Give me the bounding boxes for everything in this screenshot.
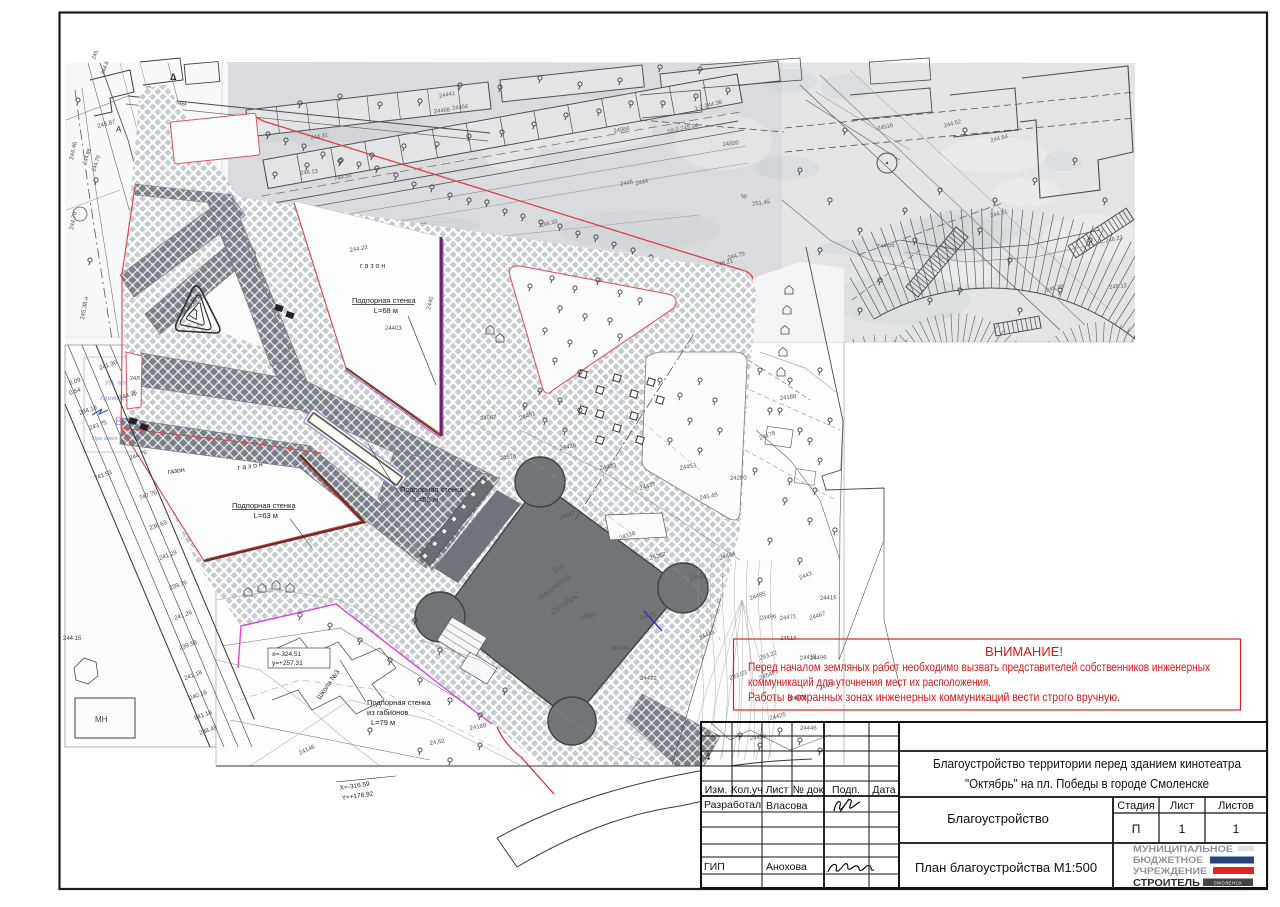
svg-text:Благоустройство: Благоустройство bbox=[947, 811, 1049, 826]
svg-text:L=63 м: L=63 м bbox=[254, 511, 278, 520]
svg-text:БЮДЖЕТНОЕ: БЮДЖЕТНОЕ bbox=[1133, 855, 1203, 865]
svg-text:24416: 24416 bbox=[820, 595, 838, 602]
svg-text:Лист: Лист bbox=[1170, 800, 1194, 812]
svg-text:А: А bbox=[116, 125, 122, 134]
svg-text:24403: 24403 bbox=[385, 326, 402, 332]
svg-text:коммуникаций для уточнения мес: коммуникаций для уточнения мест их распо… bbox=[748, 675, 991, 689]
svg-text:СТРОИТЕЛЬ: СТРОИТЕЛЬ bbox=[1133, 878, 1200, 889]
svg-text:1: 1 bbox=[1179, 822, 1186, 836]
svg-text:L=55 м: L=55 м bbox=[414, 495, 438, 504]
svg-text:244.15: 244.15 bbox=[63, 636, 82, 642]
svg-text:x=-324.51: x=-324.51 bbox=[272, 651, 301, 658]
svg-text:Перед началом земляных работ н: Перед началом земляных работ необходимо … bbox=[748, 660, 1210, 674]
svg-text:Подпорная стенка: Подпорная стенка bbox=[400, 485, 464, 494]
svg-text:244.04: 244.04 bbox=[610, 646, 629, 652]
svg-text:МУНИЦИПАЛЬНОЕ: МУНИЦИПАЛЬНОЕ bbox=[1133, 844, 1233, 854]
svg-text:Разработал: Разработал bbox=[704, 799, 761, 811]
svg-text:П: П bbox=[1132, 822, 1141, 836]
svg-text:L=79 м: L=79 м bbox=[371, 718, 395, 727]
svg-text:Кол.уч: Кол.уч bbox=[731, 784, 763, 796]
svg-text:Власова: Власова bbox=[766, 800, 808, 812]
svg-text:ГИП: ГИП bbox=[704, 861, 725, 873]
svg-text:Стадия: Стадия bbox=[1117, 800, 1155, 812]
svg-text:Лист: Лист bbox=[766, 784, 789, 796]
svg-text:УЧРЕЖДЕНИЕ: УЧРЕЖДЕНИЕ bbox=[1133, 866, 1207, 876]
svg-text:Дата: Дата bbox=[872, 784, 895, 796]
svg-text:План благоустройства М1:500: План благоустройства М1:500 bbox=[915, 860, 1097, 875]
svg-text:Листов: Листов bbox=[1218, 800, 1254, 812]
svg-text:СМОЛЕНСК: СМОЛЕНСК bbox=[1214, 881, 1243, 886]
svg-text:МН: МН bbox=[95, 715, 108, 724]
svg-text:г а з о н: г а з о н bbox=[360, 263, 385, 270]
svg-text:24567: 24567 bbox=[480, 415, 498, 422]
svg-text:Подп.: Подп. bbox=[832, 784, 860, 796]
svg-text:Подпорная стенка: Подпорная стенка bbox=[232, 501, 296, 510]
svg-text:Подпорная стенка: Подпорная стенка bbox=[352, 296, 416, 305]
svg-text:Изм.: Изм. bbox=[705, 784, 728, 796]
svg-text:1: 1 bbox=[1233, 822, 1240, 836]
svg-text:24200: 24200 bbox=[730, 476, 748, 482]
svg-text:24Л: 24Л bbox=[130, 376, 140, 382]
svg-text:24472: 24472 bbox=[640, 676, 657, 682]
svg-text:4: 4 bbox=[705, 752, 711, 763]
svg-text:y=+257.31: y=+257.31 bbox=[272, 660, 303, 667]
svg-text:Благоустройство территории пер: Благоустройство территории перед зданием… bbox=[933, 756, 1242, 771]
svg-text:ВНИМАНИЕ!: ВНИМАНИЕ! bbox=[985, 644, 1063, 659]
svg-text:24446: 24446 bbox=[800, 726, 817, 732]
svg-text:5р: 5р bbox=[741, 193, 748, 200]
svg-text:L=68 м: L=68 м bbox=[374, 306, 398, 315]
svg-text:"Октябрь" на пл. Победы в горо: "Октябрь" на пл. Победы в городе Смоленс… bbox=[965, 776, 1209, 791]
svg-text:Анохова: Анохова bbox=[766, 861, 807, 873]
svg-text:Работы в охранных зонах инжене: Работы в охранных зонах инженерных комму… bbox=[748, 690, 1120, 704]
svg-text:№ док: № док bbox=[793, 784, 824, 796]
